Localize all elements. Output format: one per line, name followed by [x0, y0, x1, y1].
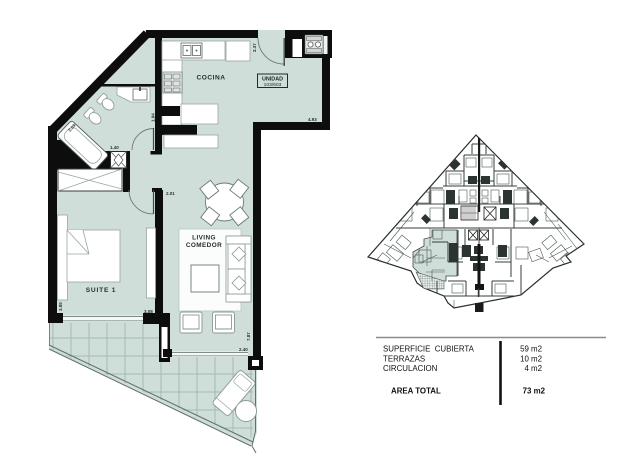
svg-text:UNIDAD: UNIDAD	[262, 76, 283, 82]
svg-text:1.94: 1.94	[151, 113, 156, 122]
svg-text:2.37: 2.37	[252, 43, 257, 52]
svg-text:COCINA: COCINA	[196, 75, 225, 82]
svg-text:4 m2: 4 m2	[524, 364, 542, 373]
svg-text:3.85: 3.85	[58, 302, 63, 311]
svg-text:103/603: 103/603	[264, 82, 282, 88]
svg-text:3.08: 3.08	[144, 309, 153, 314]
svg-text:4.93: 4.93	[308, 117, 317, 122]
svg-text:CIRCULACION: CIRCULACION	[383, 364, 438, 373]
svg-text:SUITE 1: SUITE 1	[86, 287, 117, 294]
svg-text:AREA TOTAL: AREA TOTAL	[391, 387, 441, 396]
svg-text:2.01: 2.01	[166, 191, 175, 196]
svg-text:COMEDOR: COMEDOR	[186, 242, 222, 249]
svg-text:LIVING: LIVING	[192, 235, 216, 242]
svg-text:59 m2: 59 m2	[520, 345, 542, 354]
svg-text:7.87: 7.87	[246, 332, 251, 341]
svg-text:SUPERFICIE CUBIERTA: SUPERFICIE CUBIERTA	[383, 345, 475, 354]
svg-text:73 m2: 73 m2	[523, 387, 546, 396]
svg-text:10 m2: 10 m2	[520, 355, 542, 364]
svg-text:1.40: 1.40	[110, 145, 119, 150]
svg-text:2.40: 2.40	[239, 347, 248, 352]
svg-text:TERRAZAS: TERRAZAS	[383, 355, 425, 364]
